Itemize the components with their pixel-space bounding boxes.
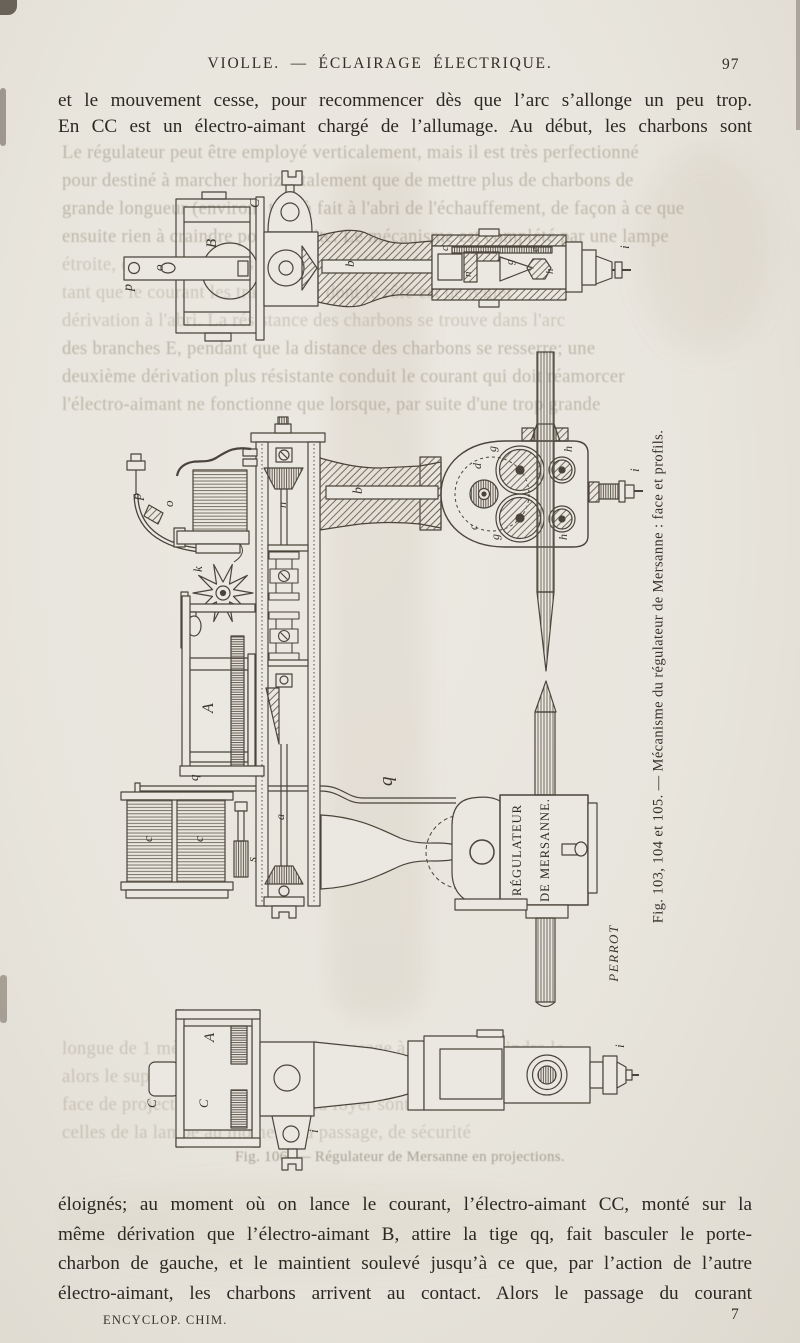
svg-text:c: c bbox=[140, 836, 155, 842]
figure-rotated-caption: Fig. 103, 104 et 105. — Mécanisme du rég… bbox=[651, 348, 668, 1006]
engraver-signature: PERROT bbox=[606, 924, 621, 982]
svg-text:g: g bbox=[504, 259, 516, 265]
publisher-imprint: ENCYCLOP. CHIM. bbox=[103, 1313, 228, 1328]
svg-text:q: q bbox=[186, 774, 201, 781]
running-header-title: VIOLLE. — ÉCLAIRAGE ÉLECTRIQUE. bbox=[0, 55, 760, 73]
svg-text:o: o bbox=[151, 264, 166, 271]
svg-text:A: A bbox=[200, 703, 217, 714]
svg-text:p: p bbox=[121, 284, 136, 292]
svg-text:k: k bbox=[190, 566, 205, 572]
fig-103-profile bbox=[124, 171, 631, 341]
svg-text:h: h bbox=[556, 534, 570, 540]
svg-text:o: o bbox=[161, 500, 176, 507]
svg-text:i: i bbox=[306, 1129, 321, 1133]
book-page: Le régulateur peut être employé vertical… bbox=[0, 0, 800, 1343]
svg-text:C: C bbox=[144, 1099, 159, 1108]
paragraph-bottom-line: charbon de gauche, et le maintient soule… bbox=[58, 1253, 752, 1283]
svg-text:n: n bbox=[275, 502, 289, 508]
svg-text:h: h bbox=[561, 446, 575, 452]
paragraph-bottom: éloignés; au moment où on lance le coura… bbox=[58, 1194, 752, 1312]
svg-text:g: g bbox=[485, 446, 499, 452]
svg-text:i: i bbox=[617, 245, 632, 249]
paragraph-top-line: et le mouvement cesse, pour recommencer … bbox=[58, 90, 752, 116]
paragraph-bottom-line: électro-aimant, les charbons arrivent au… bbox=[58, 1283, 752, 1313]
paragraph-top-line: En CC est un électro-aimant chargé de l’… bbox=[58, 116, 752, 142]
svg-text:A: A bbox=[202, 1032, 218, 1043]
figure-plate: p o B C b c n g e h i bbox=[0, 0, 800, 1343]
svg-text:c: c bbox=[466, 524, 480, 530]
svg-text:a: a bbox=[273, 814, 287, 820]
svg-text:n: n bbox=[462, 271, 474, 277]
svg-text:e: e bbox=[529, 247, 541, 252]
svg-text:i: i bbox=[627, 468, 642, 472]
svg-text:b: b bbox=[342, 260, 357, 267]
svg-text:d: d bbox=[470, 462, 484, 469]
page-number: 97 bbox=[722, 56, 740, 74]
fig-105-profile bbox=[149, 1010, 639, 1170]
svg-text:b: b bbox=[351, 487, 366, 494]
svg-text:RÉGULATEUR: RÉGULATEUR bbox=[510, 804, 524, 896]
svg-text:p: p bbox=[130, 493, 145, 501]
paragraph-top: et le mouvement cesse, pour recommencer … bbox=[58, 90, 752, 142]
svg-text:DE MERSANNE.: DE MERSANNE. bbox=[538, 798, 552, 902]
svg-text:C: C bbox=[248, 198, 263, 208]
svg-text:c: c bbox=[191, 836, 206, 842]
svg-text:s: s bbox=[244, 857, 259, 862]
svg-text:C: C bbox=[196, 1099, 211, 1108]
svg-text:c: c bbox=[439, 246, 451, 251]
svg-text:h: h bbox=[544, 268, 556, 274]
paragraph-bottom-line: même dérivation que l’électro-aimant B, … bbox=[58, 1224, 752, 1254]
svg-text:i: i bbox=[612, 1044, 627, 1048]
paragraph-bottom-line: éloignés; au moment où on lance le coura… bbox=[58, 1194, 752, 1224]
sheet-signature-number: 7 bbox=[731, 1306, 739, 1324]
svg-text:q: q bbox=[376, 776, 397, 786]
svg-text:g: g bbox=[488, 534, 502, 540]
svg-text:B: B bbox=[204, 239, 220, 248]
